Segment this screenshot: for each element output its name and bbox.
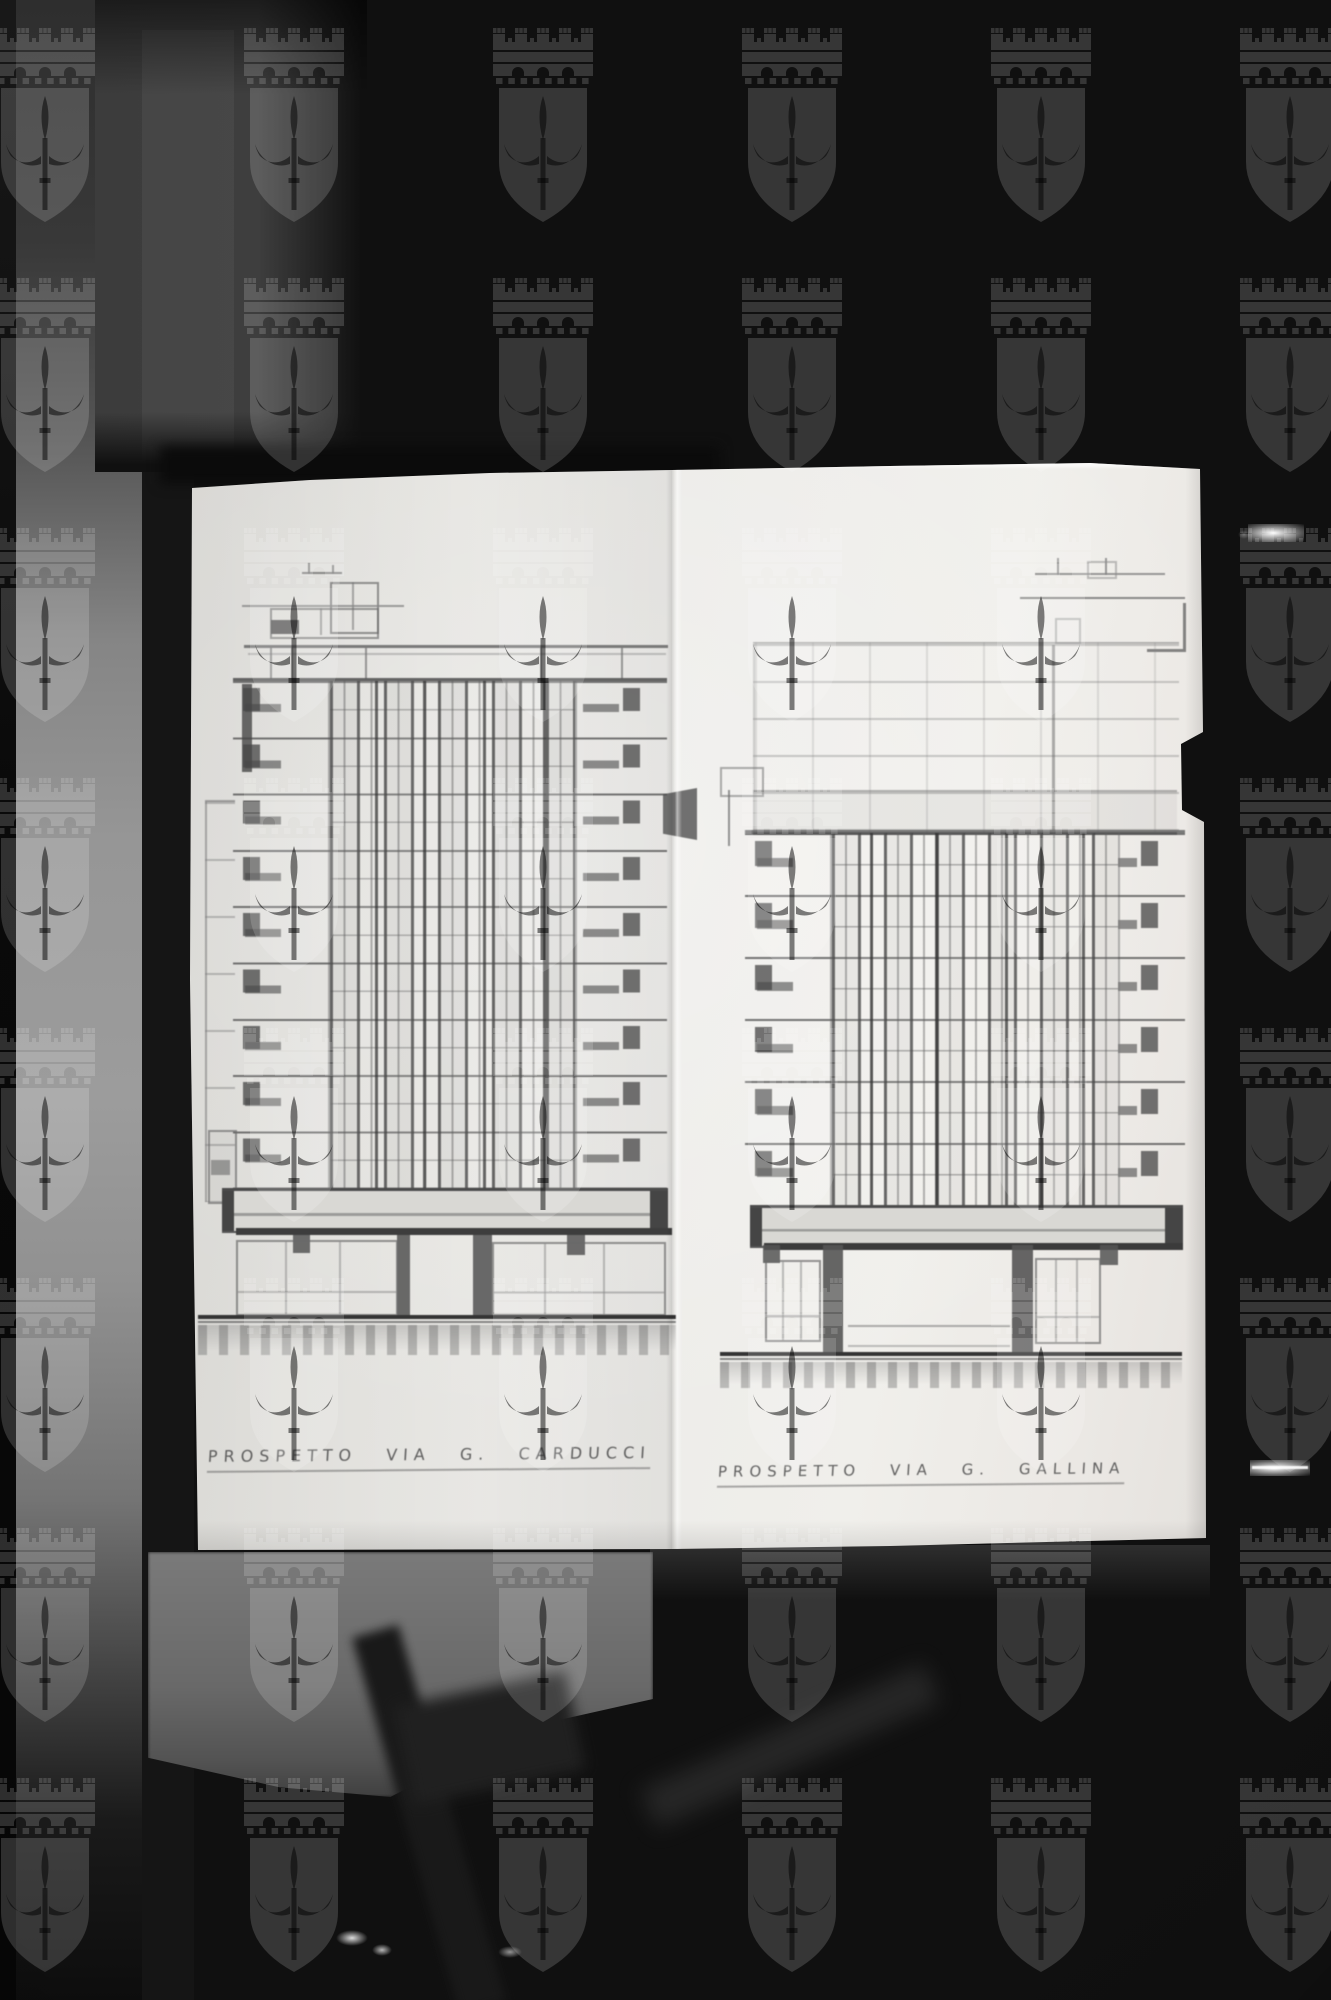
archival-photo: PROSPETTO VIA G. CARDUCCI: [0, 0, 1331, 2000]
photo-vignette: [0, 0, 1331, 2000]
